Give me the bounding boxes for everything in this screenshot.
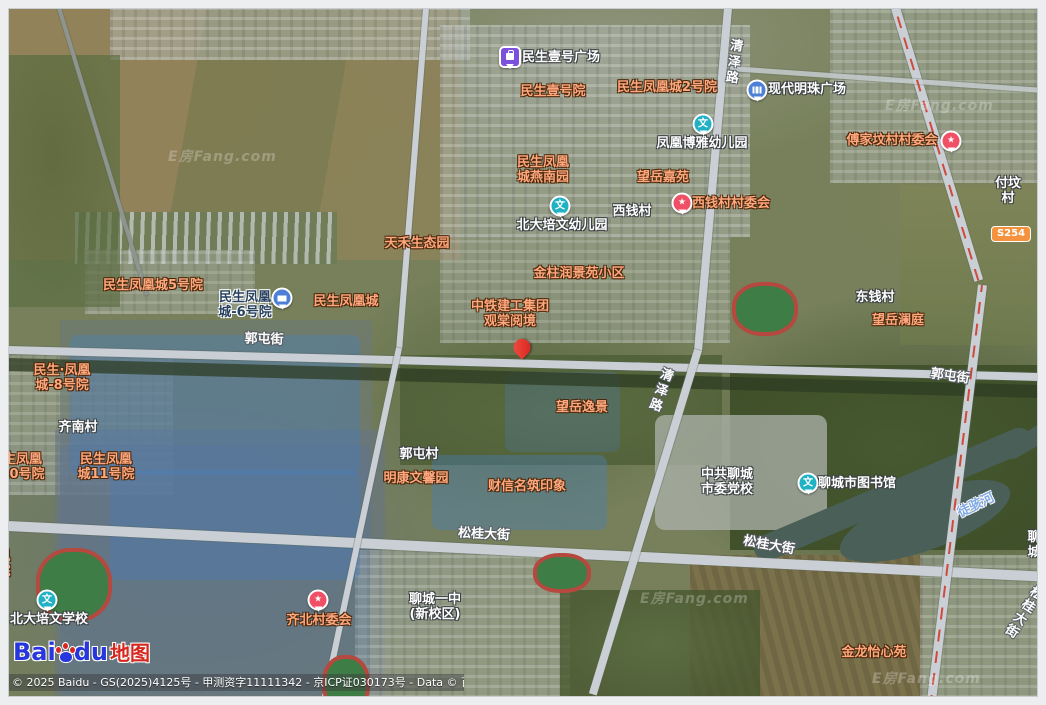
label-qinan-village[interactable]: 齐南村 — [58, 420, 97, 435]
road-west-north — [396, 8, 429, 349]
railway-northwest — [57, 7, 149, 295]
running-track — [533, 553, 591, 593]
label-minsheng-yihao-yard[interactable]: 民生壹号院 — [520, 84, 585, 99]
watermark: E房Fang.com — [885, 95, 994, 115]
road-badge-s254: S254 — [991, 226, 1031, 242]
label-songgui-avenue: 松桂大街 — [458, 526, 511, 544]
watermark: E房Fang.com — [168, 146, 277, 166]
baidu-logo-ditu: 地图 — [110, 642, 150, 664]
terrain-village-north — [110, 8, 470, 60]
label-yannan-garden[interactable]: 民生凤凰 城燕南园 — [517, 155, 569, 185]
label-qingze-road-south: 清泽路 — [644, 365, 674, 415]
label-guotun-street: 郭屯街 — [244, 331, 284, 347]
modern-pearl-plaza-marker[interactable] — [747, 80, 768, 101]
star-icon: ★ — [943, 133, 960, 150]
label-modern-pearl-plaza[interactable]: 现代明珠广场 — [768, 82, 846, 97]
watermark: E房Fang.com — [872, 668, 981, 688]
label-phoenix-city-8[interactable]: 民生·凤凰 城-8号院 — [34, 363, 91, 393]
bank-marker[interactable] — [272, 288, 293, 309]
label-phoenix-city-11[interactable]: 民生凤凰 城11号院 — [77, 452, 134, 482]
map-canvas[interactable]: S254 Bai du 地图 © 2025 Baidu - GS(2025)41… — [0, 0, 1046, 705]
shopping-plaza-marker[interactable] — [499, 46, 521, 68]
label-xiqian-village[interactable]: 西钱村 — [612, 204, 651, 219]
label-phoenix-city-10[interactable]: 民生凤凰 城10号院 — [0, 452, 45, 482]
label-fujiafen-committee[interactable]: 傅家坟村村委会 — [846, 133, 937, 148]
culture-icon: 文 — [695, 116, 712, 133]
bank-icon — [278, 296, 287, 302]
baidu-logo-du: du — [74, 640, 108, 664]
label-wangyue-jiayuan[interactable]: 望岳嘉苑 — [637, 170, 689, 185]
label-tianhe-eco-park[interactable]: 天禾生态园 — [384, 236, 449, 251]
label-clipped-left[interactable]: 凰 院 — [0, 549, 11, 579]
terrain-greenhouses — [75, 212, 337, 264]
terrain-trees-west — [8, 55, 120, 307]
fujiafen-committee-marker[interactable]: ★ — [941, 131, 962, 152]
copyright-text: © 2025 Baidu - GS(2025)4125号 - 甲测资字11111… — [8, 674, 464, 691]
bag-icon — [506, 53, 514, 60]
terrain-farmland — [8, 8, 460, 260]
label-mingkang-wenxinyuan[interactable]: 明康文馨园 — [383, 471, 448, 486]
label-phoenix-city-2[interactable]: 民生凤凰城2号院 — [617, 80, 717, 95]
label-songgui-avenue-clipped: 松桂大街 — [998, 582, 1046, 644]
map-window: S254 Bai du 地图 © 2025 Baidu - GS(2025)41… — [0, 0, 1046, 705]
label-phoenix-city-6[interactable]: 民生凤凰 城-6号院 — [218, 290, 271, 320]
label-wangyue-yijing[interactable]: 望岳逸景 — [556, 400, 608, 415]
label-liaocheng-clipped[interactable]: 聊城 — [1022, 530, 1046, 560]
library-marker[interactable]: 文 — [798, 473, 819, 494]
culture-icon: 文 — [800, 475, 817, 492]
culture-icon: 文 — [39, 592, 56, 609]
label-xiqian-committee[interactable]: 西钱村村委会 — [692, 196, 770, 211]
selected-location-pin[interactable] — [510, 335, 534, 359]
label-minsheng-yihao-plaza[interactable]: 民生壹号广场 — [522, 50, 600, 65]
label-guotun-street-east: 郭屯街 — [930, 366, 971, 386]
watermark: E房Fang.com — [640, 588, 749, 608]
label-guotun-village[interactable]: 郭屯村 — [399, 447, 438, 462]
building-icon — [753, 87, 762, 94]
label-party-school[interactable]: 中共聊城 市委党校 — [701, 467, 753, 497]
boya-kindergarten-marker[interactable]: 文 — [693, 114, 714, 135]
running-track — [732, 282, 798, 336]
label-dongqian-village[interactable]: 东钱村 — [855, 290, 894, 305]
xiqian-committee-marker[interactable]: ★ — [672, 193, 693, 214]
label-caixin-mingzhu[interactable]: 财信名筑印象 — [488, 479, 566, 494]
baidu-logo-bai: Bai — [13, 640, 56, 664]
label-phoenix-city-5[interactable]: 民生凤凰城5号院 — [103, 278, 203, 293]
label-guantang-yuejing[interactable]: 中铁建工集团 观棠阅境 — [471, 299, 549, 329]
baidu-paw-icon — [55, 642, 75, 664]
label-jinzhu-runjingyuan[interactable]: 金柱润景苑小区 — [533, 266, 624, 281]
label-phoenix-city[interactable]: 民生凤凰城 — [313, 294, 378, 309]
label-liaocheng-library[interactable]: 聊城市图书馆 — [818, 476, 896, 491]
peiwen-kindergarten-marker[interactable]: 文 — [550, 196, 571, 217]
culture-icon: 文 — [552, 198, 569, 215]
star-icon: ★ — [674, 195, 691, 212]
peiwen-school-marker[interactable]: 文 — [37, 590, 58, 611]
label-wangyue-lanting[interactable]: 望岳澜庭 — [872, 313, 924, 328]
star-icon: ★ — [310, 592, 327, 609]
label-jinlong-yixinyuan[interactable]: 金龙怡心苑 — [841, 645, 906, 660]
label-no1-middle-school[interactable]: 聊城一中 (新校区) — [409, 592, 461, 622]
label-fufen-village[interactable]: 付坟村 — [989, 176, 1027, 206]
baidu-maps-logo: Bai du 地图 — [13, 640, 150, 664]
qibei-committee-marker[interactable]: ★ — [308, 590, 329, 611]
